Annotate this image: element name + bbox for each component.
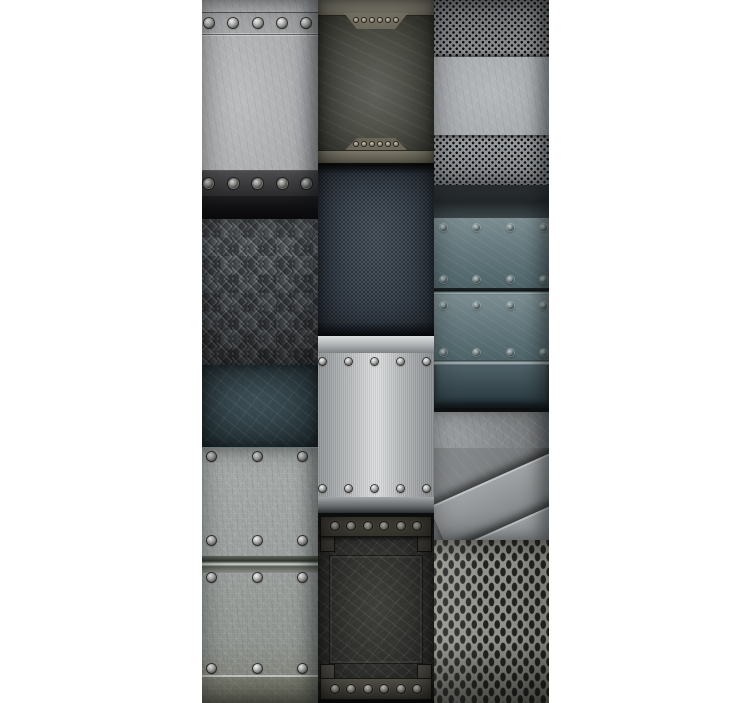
bolt — [413, 685, 421, 693]
bolt — [380, 685, 388, 693]
rivet — [378, 18, 382, 22]
rivet-row — [207, 573, 307, 582]
rivet — [397, 485, 404, 492]
tile-grunge-bracket-plaque — [318, 0, 434, 166]
rivet — [253, 452, 262, 461]
bolt — [331, 522, 339, 530]
rivet — [207, 452, 216, 461]
tile-dark-teal-plate — [202, 365, 318, 448]
rivet — [277, 18, 287, 28]
rivet — [440, 276, 447, 283]
rivet — [345, 358, 352, 365]
plaque-top-band — [318, 336, 434, 354]
tile-dark-bolted-plaque — [318, 516, 434, 703]
plank-seam — [434, 288, 549, 295]
rivet — [278, 179, 287, 188]
plate-bottom-shade — [202, 677, 318, 703]
rivet — [423, 485, 430, 492]
rivet — [253, 573, 262, 582]
bolt — [397, 522, 405, 530]
rivet-row — [440, 349, 547, 356]
rivet — [423, 358, 430, 365]
rivet — [253, 664, 262, 673]
collage-column-middle — [318, 0, 434, 703]
rivet — [440, 349, 447, 356]
rivet-row — [354, 142, 398, 146]
top-shadow-fade — [318, 166, 434, 174]
collage-column-right — [434, 0, 549, 703]
rivet — [298, 452, 307, 461]
dark-top-bar — [434, 185, 549, 218]
rivet — [204, 179, 213, 188]
rivet — [440, 224, 447, 231]
rivet — [228, 18, 238, 28]
rivet — [370, 142, 374, 146]
trapezoid-bracket-top — [344, 13, 408, 29]
rivet-row — [204, 18, 311, 28]
bolt — [347, 685, 355, 693]
bolt — [397, 685, 405, 693]
rivet-row — [440, 276, 547, 283]
rivet — [473, 224, 480, 231]
rivet-row — [440, 224, 547, 231]
rivet — [386, 142, 390, 146]
rivet — [298, 536, 307, 545]
plank-groove — [202, 556, 318, 573]
rivet — [540, 349, 547, 356]
rivet — [229, 179, 238, 188]
bolt — [364, 522, 372, 530]
rivet — [319, 485, 326, 492]
rivet — [302, 179, 311, 188]
bolt-row — [331, 685, 421, 693]
rivet — [540, 302, 547, 309]
rivet — [204, 18, 214, 28]
rivet — [386, 18, 390, 22]
dark-teal-plank — [434, 365, 549, 408]
rivet — [298, 664, 307, 673]
rivet — [207, 536, 216, 545]
rivet — [540, 276, 547, 283]
rivet-row — [204, 179, 311, 188]
rivet-row — [319, 358, 430, 365]
rivet-row — [319, 485, 430, 492]
tile-riveted-gray-plaque — [202, 0, 318, 219]
rivet — [371, 358, 378, 365]
tile-light-riveted-planks — [202, 448, 318, 703]
rivet-row — [207, 664, 307, 673]
bolt — [380, 522, 388, 530]
rivet — [394, 18, 398, 22]
metal-footer-band — [318, 150, 434, 163]
collage-column-left — [202, 0, 318, 703]
bolt — [413, 522, 421, 530]
metal-textures-collage-image — [0, 0, 752, 703]
tile-teal-riveted-planks — [434, 185, 549, 408]
rivet — [207, 573, 216, 582]
rivet — [354, 18, 358, 22]
plaque-face — [318, 353, 434, 497]
dark-rivet-bar — [202, 170, 318, 197]
rivet — [319, 358, 326, 365]
tile-brushed-silver-plaque — [318, 336, 434, 516]
black-edge-band — [202, 196, 318, 219]
teal-plank — [434, 295, 549, 360]
rivet-row — [440, 302, 547, 309]
rivet — [378, 142, 382, 146]
plaque-bottom-band — [318, 497, 434, 513]
bolt — [364, 685, 372, 693]
tile-angled-steel-plates — [434, 408, 549, 540]
rivet — [540, 224, 547, 231]
bolt-row — [331, 522, 421, 530]
bolted-bar-bottom — [320, 678, 432, 700]
rivet — [371, 485, 378, 492]
rivet — [394, 142, 398, 146]
rivet — [507, 224, 514, 231]
rivet — [440, 302, 447, 309]
teal-plank — [434, 218, 549, 288]
rivet — [345, 485, 352, 492]
bottom-shadow-fade — [318, 322, 434, 336]
bolt — [331, 685, 339, 693]
diagonal-plates-area — [434, 448, 549, 540]
rivet-row — [354, 18, 398, 22]
rivet — [253, 18, 263, 28]
rivet — [370, 18, 374, 22]
rivet — [507, 349, 514, 356]
rivet — [473, 302, 480, 309]
rivet — [473, 276, 480, 283]
rivet — [507, 276, 514, 283]
rivet — [298, 573, 307, 582]
rivet — [301, 18, 311, 28]
rivet — [397, 358, 404, 365]
tile-navy-perforated-sheet — [318, 166, 434, 336]
solid-plate-band — [434, 57, 549, 135]
tile-plate-on-perforated-sheet — [434, 0, 549, 185]
rivet-row — [207, 452, 307, 461]
horizontal-plate-band — [434, 412, 549, 450]
tile-diamond-checker-plate — [202, 219, 318, 365]
rivet — [507, 302, 514, 309]
bolt — [347, 522, 355, 530]
rivet — [207, 664, 216, 673]
rivet — [354, 142, 358, 146]
rivet — [473, 349, 480, 356]
rivet-row — [207, 536, 307, 545]
collage-strip — [202, 0, 549, 703]
rivet — [362, 142, 366, 146]
rivet — [253, 179, 262, 188]
bolted-bar-top — [320, 516, 432, 537]
rivet — [362, 18, 366, 22]
inner-frame-outline — [330, 556, 422, 663]
tile-expanded-metal-mesh — [434, 540, 549, 703]
rivet — [253, 536, 262, 545]
